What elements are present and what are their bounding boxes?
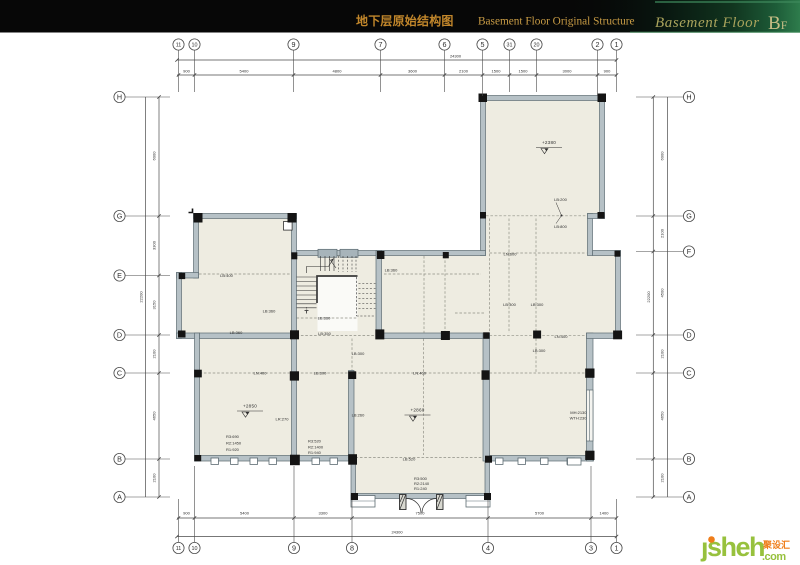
svg-text:900: 900	[183, 69, 190, 74]
svg-text:R3:520: R3:520	[308, 439, 322, 444]
svg-text:R2:1450: R2:1450	[226, 441, 242, 446]
svg-text:LB:300: LB:300	[352, 351, 365, 356]
svg-text:F: F	[687, 247, 692, 256]
svg-text:R1:920: R1:920	[226, 447, 240, 452]
svg-text:WTH:230: WTH:230	[570, 416, 588, 421]
svg-text:4650: 4650	[660, 411, 665, 421]
svg-text:LB:300: LB:300	[533, 348, 546, 353]
svg-text:1400: 1400	[600, 511, 610, 516]
svg-text:24300: 24300	[391, 530, 403, 535]
svg-text:H: H	[686, 93, 691, 102]
svg-text:LB:300: LB:300	[314, 371, 327, 376]
svg-text:LB:200: LB:200	[554, 197, 567, 202]
svg-text:3000: 3000	[563, 69, 573, 74]
svg-text:LB:360: LB:360	[230, 330, 243, 335]
svg-text:+2860: +2860	[411, 408, 425, 413]
svg-text:C: C	[686, 369, 691, 378]
svg-text:10: 10	[192, 42, 198, 48]
svg-text:2100: 2100	[459, 69, 469, 74]
svg-text:LB:350: LB:350	[318, 331, 331, 336]
svg-text:3300: 3300	[319, 511, 329, 516]
svg-text:R1:940: R1:940	[308, 450, 322, 455]
svg-text:900: 900	[604, 69, 611, 74]
svg-text:1: 1	[306, 307, 308, 311]
svg-text:10: 10	[192, 546, 198, 552]
svg-text:5400: 5400	[240, 69, 250, 74]
svg-text:LN:400: LN:400	[555, 334, 569, 339]
svg-text:LB:300: LB:300	[503, 302, 516, 307]
svg-text:9: 9	[292, 40, 296, 49]
svg-text:4800: 4800	[333, 69, 343, 74]
svg-text:LB:360: LB:360	[318, 316, 331, 321]
svg-text:D: D	[686, 331, 691, 340]
svg-text:3300: 3300	[152, 240, 157, 250]
svg-text:Basement Floor: Basement Floor	[655, 15, 760, 31]
svg-text:900: 900	[183, 511, 190, 516]
svg-text:G: G	[686, 212, 692, 221]
svg-text:LB:520: LB:520	[403, 456, 416, 461]
svg-text:LB:300: LB:300	[531, 302, 544, 307]
svg-text:B: B	[117, 455, 122, 464]
svg-text:7: 7	[379, 40, 383, 49]
svg-text:2100: 2100	[660, 473, 665, 483]
svg-text:20: 20	[534, 42, 540, 48]
svg-text:3600: 3600	[408, 69, 418, 74]
svg-text:R2:1400: R2:1400	[308, 444, 324, 449]
svg-text:R3:690: R3:690	[226, 434, 240, 439]
svg-text:A: A	[687, 493, 692, 502]
svg-text:6: 6	[443, 40, 447, 49]
svg-text:4650: 4650	[152, 411, 157, 421]
svg-text:G: G	[117, 212, 123, 221]
svg-text:C: C	[117, 369, 122, 378]
svg-text:22200: 22200	[139, 291, 144, 303]
svg-text:9: 9	[292, 544, 296, 553]
svg-text:LB:800: LB:800	[554, 224, 567, 229]
svg-text:LB:400: LB:400	[220, 273, 233, 278]
svg-text:+2380: +2380	[542, 140, 556, 145]
svg-text:1500: 1500	[492, 69, 502, 74]
svg-text:+2850: +2850	[243, 404, 257, 409]
svg-text:R1:240: R1:240	[414, 486, 428, 491]
svg-text:聚设汇: 聚设汇	[762, 539, 790, 550]
svg-text:LN:400: LN:400	[413, 371, 427, 376]
svg-text:Basement Floor Original Struct: Basement Floor Original Structure	[478, 16, 635, 28]
svg-text:1500: 1500	[519, 69, 529, 74]
svg-text:2100: 2100	[660, 228, 665, 238]
svg-text:5400: 5400	[240, 511, 250, 516]
svg-text:2100: 2100	[660, 349, 665, 359]
svg-text:1: 1	[615, 40, 619, 49]
svg-text:7500: 7500	[416, 511, 426, 516]
svg-text:6000: 6000	[660, 151, 665, 161]
svg-text:3150: 3150	[152, 300, 157, 310]
svg-text:LB:260: LB:260	[352, 413, 365, 418]
svg-text:22200: 22200	[646, 291, 651, 303]
svg-text:E: E	[117, 271, 122, 280]
svg-text:4: 4	[486, 544, 490, 553]
svg-text:LB:360: LB:360	[385, 267, 398, 272]
svg-text:8: 8	[350, 544, 354, 553]
svg-text:B: B	[687, 455, 692, 464]
svg-text:1: 1	[615, 544, 619, 553]
svg-text:.com: .com	[762, 551, 786, 563]
svg-text:6000: 6000	[152, 151, 157, 161]
svg-text:3: 3	[589, 544, 593, 553]
svg-text:2100: 2100	[152, 349, 157, 359]
svg-text:5700: 5700	[535, 511, 545, 516]
svg-text:A: A	[117, 493, 122, 502]
svg-text:LN:600: LN:600	[504, 251, 518, 256]
svg-text:H: H	[117, 93, 122, 102]
svg-text:24300: 24300	[450, 54, 462, 59]
svg-text:LB:360: LB:360	[263, 309, 276, 314]
svg-text:LN:400: LN:400	[254, 371, 268, 376]
svg-text:11: 11	[176, 42, 182, 48]
svg-text:2100: 2100	[152, 473, 157, 483]
svg-text:LR:270: LR:270	[276, 417, 290, 422]
svg-text:地下层原始结构图: 地下层原始结构图	[356, 13, 454, 28]
svg-text:2: 2	[596, 40, 600, 49]
svg-text:D: D	[117, 331, 122, 340]
svg-text:31: 31	[507, 42, 513, 48]
svg-text:5: 5	[481, 40, 485, 49]
svg-text:MH:2130: MH:2130	[570, 410, 587, 415]
svg-text:11: 11	[176, 546, 182, 552]
svg-text:4500: 4500	[660, 288, 665, 298]
